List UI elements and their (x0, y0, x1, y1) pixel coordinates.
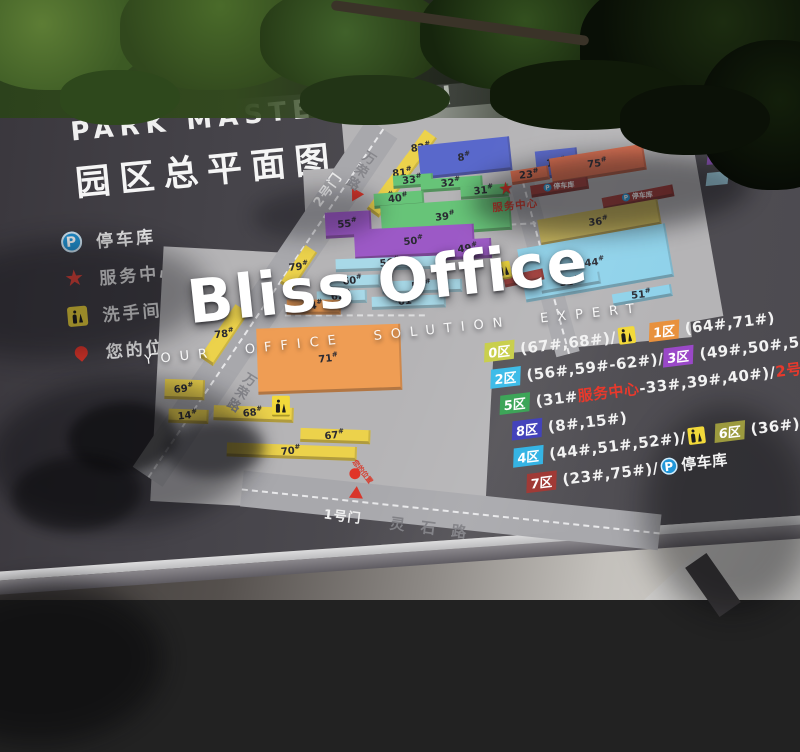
zone-number: 3区 (557, 160, 591, 183)
building-39: 39# (380, 197, 512, 239)
zone-swatch: 5区 (500, 392, 530, 415)
service-star-icon: ★ (497, 178, 514, 199)
building-number: 71# (318, 350, 339, 365)
parking-garage-label: P停车库 (542, 179, 574, 192)
building-69: 69# (164, 379, 205, 400)
male-figure (621, 333, 626, 342)
leaves (120, 0, 320, 90)
restroom-icon (272, 396, 290, 417)
legend-label: 停车库 (95, 222, 157, 252)
parking-garage-label: P停车库 (621, 189, 653, 202)
zone-name: VR电竞娱乐 (591, 106, 710, 137)
building-40: 40# (374, 190, 425, 208)
leaf-shadow (0, 368, 264, 536)
building-number: 14# (177, 407, 198, 422)
zone-swatch: 7区 (526, 470, 556, 493)
building-70: 70# (227, 442, 357, 461)
building-number: 80# (373, 189, 394, 204)
zone-color-swatch (706, 171, 729, 186)
building-number: 32# (440, 175, 461, 190)
parking-icon: P (543, 183, 552, 192)
building-number: 31# (473, 183, 494, 198)
legend-item-parking-icon: P停车库 (57, 214, 178, 261)
leaf-shadow (162, 418, 266, 480)
zone-number: 0区 (560, 96, 594, 119)
service-center-label: 服务中心 (492, 196, 539, 216)
zone-swatch: 0区 (484, 340, 514, 363)
your-location-dot (349, 468, 361, 480)
restroom-icon (617, 326, 636, 345)
gate2-marker (346, 184, 364, 201)
zone-swatch: 8区 (512, 418, 542, 441)
leaf-shadow (9, 452, 144, 536)
building-number: 75# (586, 155, 607, 170)
building-number: 40# (387, 191, 408, 206)
building-numbers: (8#,15#) (547, 408, 628, 436)
building-15: 15# (535, 147, 580, 179)
zone-name: 视听影视 (777, 67, 800, 98)
zone-name: 创客空间 (775, 109, 800, 140)
building-8: 8# (417, 136, 512, 179)
male-figure (691, 433, 696, 442)
gate2-label: 2号门 (308, 168, 346, 210)
building-number: 81# (391, 164, 412, 179)
tree-branch (331, 0, 590, 46)
red-note-text: 服务中心 (576, 378, 640, 406)
building-81: 81# (385, 155, 418, 193)
spacer (635, 333, 649, 335)
wanrong-road-label: 万荣路 (224, 372, 259, 417)
zone-color-swatch (707, 150, 730, 165)
building-67: 67# (300, 428, 370, 444)
building-31: 31# (460, 183, 509, 199)
zone-swatch: 4区 (513, 445, 543, 468)
zone-swatch: 6区 (715, 420, 745, 443)
building-number: 39# (435, 209, 456, 224)
zone-swatch: 3区 (663, 345, 693, 368)
zone-swatch: 2区 (490, 366, 520, 389)
zone-name: 筑梦飞船 (776, 88, 800, 119)
gate1-label: 1号门 (323, 503, 363, 526)
road-center-dash (242, 488, 660, 534)
building-number: 69# (173, 380, 194, 395)
building-numbers: (23#,75#)/ (561, 459, 659, 489)
parking-garage-building: P停车库 (602, 184, 675, 210)
park-sign-panel: PARK MASTER PLAN 园区总平面图 P停车库★服务中心洗手间您的位置… (0, 56, 800, 574)
parking-icon: P (57, 230, 85, 253)
leaves (0, 0, 150, 90)
zone-name: 数字传媒 (774, 131, 800, 162)
zone-number: 8区 (742, 142, 776, 165)
building-numbers: (36#) (749, 414, 800, 438)
zone-number: 6区 (744, 100, 778, 123)
building-number: 82# (410, 139, 431, 154)
zone-legend-row: 2区创意聚落7区创客空间 (558, 108, 800, 162)
red-note-text: 2号门 (774, 356, 800, 382)
your-location-label: 您的位置 (350, 458, 375, 486)
building-80: 80# (367, 180, 400, 218)
building-number: 55# (337, 215, 358, 230)
zone-legend-row: 3区影视教育8区数字传媒 (557, 129, 800, 183)
lingshi-road-label: 灵石路 (389, 512, 484, 544)
zone-name: 模型工坊 (588, 170, 707, 201)
building-numbers: (64#,71#) (684, 308, 776, 337)
building-numbers: 停车库 (680, 449, 729, 476)
zone-legend-row: 1区VR电竞娱乐6区筑梦飞船 (559, 87, 800, 140)
photo-of-park-sign: { "title": {"en": "PARK MASTER PLAN", "z… (0, 0, 800, 600)
building-33: 33# (393, 173, 434, 189)
building-75: 75# (549, 144, 647, 185)
gate1-marker (349, 486, 364, 499)
zone-name: 缤纷尚街 (592, 85, 711, 116)
title-english: PARK MASTER PLAN (69, 80, 459, 147)
building-numbers: (31# (535, 387, 579, 410)
sign-title: PARK MASTER PLAN 园区总平面图 (69, 80, 465, 206)
zone-legend-row: 4区模型工坊 (556, 150, 800, 204)
zone-legend-row: 0区缤纷尚街5区视听影视 (560, 67, 800, 120)
zone-name: 影视教育 (589, 148, 708, 179)
zone-number: 4区 (556, 181, 590, 204)
leaf-shadow (251, 184, 384, 243)
parking-text: 停车库 (552, 179, 574, 191)
building-number: 67# (324, 427, 345, 442)
building-number: 68# (242, 405, 263, 420)
zone-number: 7区 (743, 121, 777, 144)
parking-icon: P (60, 231, 83, 254)
building-number: 23# (518, 166, 539, 181)
female-figure (697, 433, 702, 442)
zone-color-legend: 0区缤纷尚街5区视听影视1区VR电竞娱乐6区筑梦飞船2区创意聚落7区创客空间3区… (560, 67, 800, 204)
building-index-legend: 0区(67#,68#)/1区(64#,71#)2区(56#,59#-62#)/3… (483, 299, 800, 502)
wanrong-road-label: 万荣路 (343, 150, 378, 195)
building-number: 15# (545, 154, 566, 169)
zone-color-swatch (708, 128, 731, 143)
building-number: 70# (280, 442, 301, 457)
building-82: 82# (404, 130, 437, 168)
spacer (705, 433, 715, 434)
zone-name: 创意聚落 (590, 127, 709, 158)
building-55: 55# (325, 210, 372, 238)
building-number: 8# (457, 149, 471, 164)
zone-number: 5区 (745, 78, 779, 101)
female-figure (282, 404, 286, 413)
zone-color-swatch (709, 107, 732, 122)
building-number: 33# (401, 172, 422, 187)
parking-garage-building: P停车库 (530, 177, 589, 198)
zone-number: 2区 (558, 139, 592, 162)
female-figure (627, 332, 632, 341)
building-23: 23# (510, 165, 550, 185)
leaf-shadow (0, 576, 169, 752)
male-figure (276, 404, 280, 413)
parking-icon: P (621, 193, 630, 202)
title-chinese: 园区总平面图 (73, 118, 465, 206)
zone-swatch: 1区 (649, 319, 679, 342)
building-68: 68# (213, 405, 293, 423)
zone-number: 1区 (559, 117, 593, 140)
building-14: 14# (168, 409, 208, 424)
zone-color-swatch (710, 86, 733, 101)
leaf-shadow (66, 399, 181, 477)
restroom-icon (687, 426, 706, 445)
parking-icon: P (659, 457, 678, 476)
road-dash-line (361, 222, 546, 234)
parking-text: 停车库 (631, 189, 653, 201)
building-32: 32# (420, 175, 483, 192)
